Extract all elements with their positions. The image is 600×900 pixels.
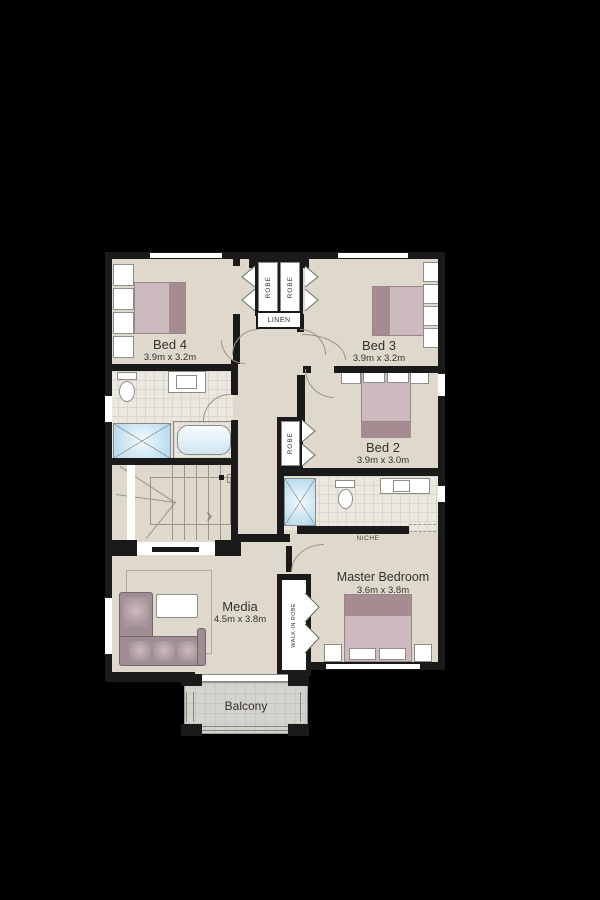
master-pillow <box>349 648 376 660</box>
ensuite-toilet-bowl <box>338 489 353 509</box>
balcony-post <box>181 724 202 736</box>
media-sofa-seat <box>119 636 205 666</box>
master-name: Master Bedroom <box>337 570 429 584</box>
bed4-robe-shelf <box>113 288 134 310</box>
bed4-name: Bed 4 <box>153 337 187 352</box>
balcony-post <box>288 674 309 686</box>
wall-ensuite-left <box>277 468 284 534</box>
master-bed-foot <box>345 595 411 616</box>
media-sofa-arm <box>197 628 206 666</box>
stair-void-strip <box>127 464 135 540</box>
sofa-cushion <box>129 641 151 662</box>
master-pillow <box>379 648 406 660</box>
stair-balustrade <box>152 547 199 552</box>
bifold-door-bed2-robe <box>301 419 317 467</box>
master-size: 3.6m x 3.8m <box>357 585 409 596</box>
balcony-sliding-door <box>195 674 303 682</box>
bed4-robe-shelf <box>113 264 134 286</box>
robe-bed4-cupboard: ROBE <box>258 262 278 313</box>
walk-in-robe-cupboard: WALK-IN ROBE <box>282 580 306 670</box>
toilet-bowl <box>119 381 135 402</box>
bed4-size: 3.9m x 3.2m <box>144 352 196 363</box>
wall-bed4-bathroom <box>109 364 235 371</box>
balcony-rail-left <box>186 692 194 722</box>
wall-bed3-bottom <box>334 366 445 373</box>
balcony-rail-right <box>300 692 308 722</box>
bed3-size: 3.9m x 3.2m <box>353 353 405 364</box>
bed4-robe-shelf <box>113 312 134 334</box>
niche-dashed-line <box>409 524 441 525</box>
master-bedside-table <box>414 644 432 662</box>
wall-hall-left-upper <box>231 360 238 395</box>
bed3-bed-foot <box>373 287 390 335</box>
bathroom-sink <box>176 375 197 389</box>
window-master <box>326 664 420 669</box>
niche-label: NICHE <box>357 535 380 542</box>
bifold-door-bed4-robe <box>240 265 256 312</box>
walk-in-robe-label: WALK-IN ROBE <box>291 603 297 648</box>
stair-direction-arrow: › <box>206 505 213 528</box>
robe-bed2-cupboard: ROBE <box>281 421 300 466</box>
bifold-door-bed3-robe <box>304 265 320 312</box>
window-media <box>105 598 112 654</box>
wall-bed2-ensuite <box>283 468 441 476</box>
ensuite-toilet-cistern <box>335 480 355 488</box>
robe-bed3-cupboard: ROBE <box>280 262 300 313</box>
bed2-pillow <box>363 372 385 383</box>
ensuite-shower <box>284 478 316 526</box>
bathtub <box>177 425 231 455</box>
balcony-name: Balcony <box>225 699 268 713</box>
bed3-name: Bed 3 <box>362 338 396 353</box>
master-bedside-table <box>324 644 342 662</box>
bed2-pillow <box>387 372 409 383</box>
wall-exterior-right <box>438 252 445 668</box>
robe-bed3-label: ROBE <box>287 276 294 298</box>
bifold-door-walk-in-robe <box>304 592 321 654</box>
balcony-rail-bottom <box>202 726 290 731</box>
sofa-cushion <box>123 597 149 627</box>
bed4-bed-head <box>169 283 185 333</box>
wall-stair-band-left <box>105 540 137 556</box>
media-size: 4.5m x 3.8m <box>214 614 266 625</box>
toilet-cistern <box>117 372 137 380</box>
balcony-post <box>288 724 309 736</box>
bathroom-shower <box>113 423 171 459</box>
sofa-cushion <box>153 641 175 662</box>
wall-ensuite-bottom <box>297 526 409 534</box>
balcony-post <box>181 674 202 686</box>
floor-plan: › ROBE ROBE LINEN ROBE <box>0 0 600 900</box>
sofa-cushion <box>177 641 199 662</box>
wall-hall-bed2 <box>297 375 305 423</box>
window-ensuite <box>438 486 445 502</box>
window-bed3 <box>338 253 408 258</box>
wall-hall-left-lower <box>231 420 238 462</box>
media-coffee-table <box>156 594 198 618</box>
window-bathroom <box>105 396 112 422</box>
window-bed4 <box>150 253 222 258</box>
niche-dashed-line <box>409 531 441 532</box>
wall-stair-right <box>231 462 238 542</box>
bed2-bed-foot <box>361 422 411 438</box>
robe-bed4-label: ROBE <box>265 276 272 298</box>
bed4-robe-shelf <box>113 336 134 358</box>
media-name: Media <box>222 599 257 614</box>
bed2-name: Bed 2 <box>366 440 400 455</box>
robe-bed2-label: ROBE <box>287 432 294 454</box>
ensuite-sink <box>393 480 410 492</box>
wall-robe-left-stub <box>233 256 240 266</box>
linen-label: LINEN <box>267 317 290 324</box>
linen-cupboard: LINEN <box>256 311 302 329</box>
wall-corridor <box>238 534 290 542</box>
stair-marker-dot <box>219 475 224 480</box>
wall-stair-band-right <box>215 540 241 556</box>
window-bed2 <box>438 374 445 396</box>
wall-stair-top <box>109 458 235 465</box>
bed2-size: 3.9m x 3.0m <box>357 455 409 466</box>
